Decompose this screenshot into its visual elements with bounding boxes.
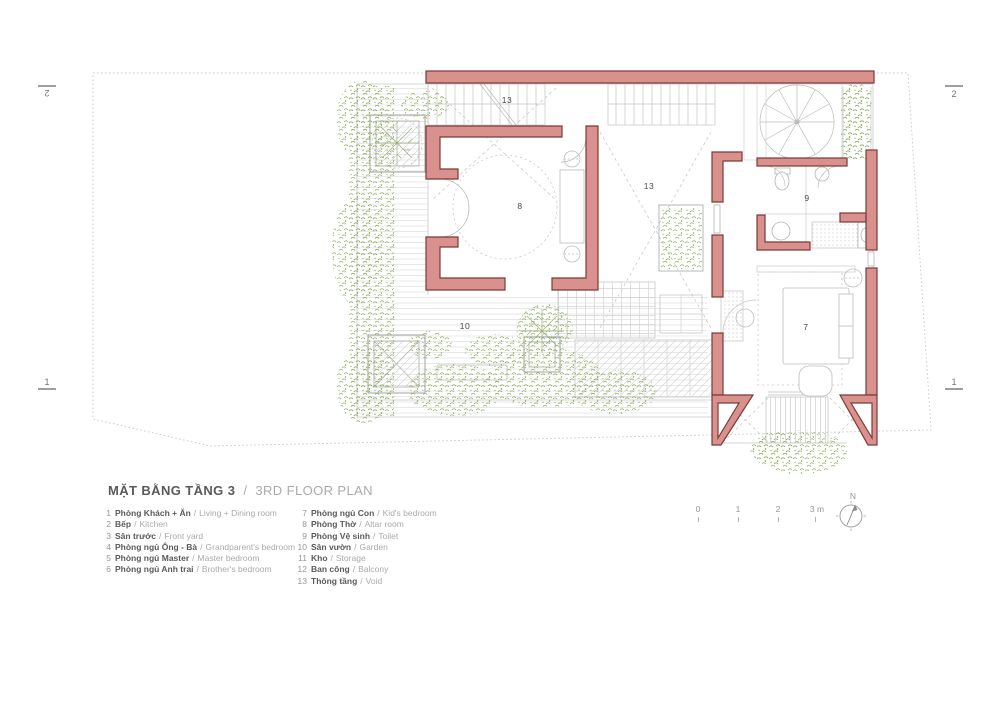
scale-tick-label: 0 <box>696 504 701 514</box>
floor-plan-drawing: 2 1 2 1 <box>0 0 1000 707</box>
legend-separator: / <box>159 531 161 542</box>
legend-separator: / <box>134 519 136 530</box>
legend-name-en: Master bedroom <box>198 553 260 564</box>
kids-bedroom-furniture <box>721 266 862 396</box>
north-arrow: N <box>833 490 869 532</box>
toilet-fixtures <box>765 166 874 250</box>
legend-name-en: Kid's bedroom <box>383 508 437 519</box>
legend-name-en: Brother's bedroom <box>202 564 272 575</box>
legend-name-en: Front yard <box>164 531 203 542</box>
room-label-garden: 10 <box>460 321 470 331</box>
legend-item: 12 Ban công / Balcony <box>296 564 437 575</box>
legend-number: 6 <box>100 564 111 575</box>
legend-name-en: Kitchen <box>139 519 167 530</box>
legend-name-vi: Sân trước <box>115 531 156 542</box>
legend-separator: / <box>377 508 379 519</box>
altar-room-furniture <box>440 137 586 262</box>
sheet-title: MẶT BẰNG TẦNG 3 / 3RD FLOOR PLAN <box>108 483 373 498</box>
legend-column-left: 1 Phòng Khách + Ăn / Living + Dining roo… <box>100 508 295 576</box>
legend-name-en: Storage <box>336 553 366 564</box>
legend-item: 4 Phòng ngủ Ông - Bà / Grandparent's bed… <box>100 542 295 553</box>
sheet-title-english: 3RD FLOOR PLAN <box>255 483 373 498</box>
legend-name-vi: Bếp <box>115 519 131 530</box>
room-label-toilet: 9 <box>804 193 809 203</box>
legend-number: 12 <box>296 564 307 575</box>
legend-separator: / <box>359 519 361 530</box>
section-marker-left-2: 2 <box>44 88 49 98</box>
legend-name-vi: Ban công <box>311 564 350 575</box>
spiral-stair <box>744 84 842 160</box>
legend-name-vi: Phòng ngủ Master <box>115 553 189 564</box>
legend-separator: / <box>360 576 362 587</box>
section-marker-right-2: 2 <box>951 89 956 99</box>
legend-separator: / <box>331 553 333 564</box>
legend-separator: / <box>373 531 375 542</box>
scale-tick-label: 2 <box>776 504 781 514</box>
room-label-altar-room: 8 <box>517 201 522 211</box>
legend-separator: / <box>194 508 196 519</box>
legend-name-vi: Phòng ngủ Anh trai <box>115 564 194 575</box>
legend-name-en: Altar room <box>365 519 404 530</box>
sheet-title-separator: / <box>243 483 247 498</box>
legend-separator: / <box>354 542 356 553</box>
legend-name-vi: Phòng ngủ Con <box>311 508 374 519</box>
legend-number: 3 <box>100 531 111 542</box>
legend-number: 7 <box>296 508 307 519</box>
balcony-planter <box>766 392 828 443</box>
legend-item: 1 Phòng Khách + Ăn / Living + Dining roo… <box>100 508 295 519</box>
legend-separator: / <box>192 553 194 564</box>
legend-item: 7 Phòng ngủ Con / Kid's bedroom <box>296 508 437 519</box>
room-label-void-stair: 13 <box>502 95 512 105</box>
legend-item: 2 Bếp / Kitchen <box>100 519 295 530</box>
stair-secondary <box>608 84 715 125</box>
legend-name-en: Garden <box>359 542 387 553</box>
section-marker-left-1: 1 <box>44 377 49 387</box>
scale-tick-label: 1 <box>736 504 741 514</box>
scale-tick-mark <box>815 517 816 522</box>
legend-name-en: Toilet <box>378 531 398 542</box>
room-label-void-center: 13 <box>644 181 654 191</box>
legend-column-right: 7 Phòng ngủ Con / Kid's bedroom 8 Phòng … <box>296 508 437 587</box>
legend-item: 8 Phòng Thờ / Altar room <box>296 519 437 530</box>
legend-number: 1 <box>100 508 111 519</box>
legend-name-en: Void <box>366 576 383 587</box>
legend-item: 13 Thông tầng / Void <box>296 576 437 587</box>
legend-name-vi: Kho <box>311 553 328 564</box>
legend-item: 6 Phòng ngủ Anh trai / Brother's bedroom <box>100 564 295 575</box>
legend-item: 9 Phòng Vệ sinh / Toilet <box>296 531 437 542</box>
floor-plan-sheet: 2 1 2 1 <box>0 0 1000 707</box>
legend-number: 4 <box>100 542 111 553</box>
legend-number: 2 <box>100 519 111 530</box>
legend-name-en: Living + Dining room <box>199 508 277 519</box>
legend-item: 10 Sân vườn / Garden <box>296 542 437 553</box>
legend-number: 11 <box>296 553 307 564</box>
scale-bar: 0 1 2 3 m <box>695 504 835 528</box>
section-marker-right-1: 1 <box>951 377 956 387</box>
legend-name-en: Balcony <box>358 564 388 575</box>
legend-item: 11 Kho / Storage <box>296 553 437 564</box>
north-label: N <box>850 491 856 501</box>
sheet-title-vietnamese: MẶT BẰNG TẦNG 3 <box>108 483 235 498</box>
scale-tick-mark <box>778 517 779 522</box>
legend-name-vi: Phòng Thờ <box>311 519 356 530</box>
legend-number: 13 <box>296 576 307 587</box>
legend-name-vi: Phòng ngủ Ông - Bà <box>115 542 197 553</box>
scale-tick-mark <box>698 517 699 522</box>
legend-name-vi: Phòng Khách + Ăn <box>115 508 191 519</box>
legend-item: 5 Phòng ngủ Master / Master bedroom <box>100 553 295 564</box>
scale-tick-mark <box>738 517 739 522</box>
legend-item: 3 Sân trước / Front yard <box>100 531 295 542</box>
legend-name-vi: Phòng Vệ sinh <box>311 531 370 542</box>
legend-name-vi: Thông tầng <box>311 576 357 587</box>
legend-number: 9 <box>296 531 307 542</box>
legend-number: 5 <box>100 553 111 564</box>
legend-number: 10 <box>296 542 307 553</box>
legend-name-en: Grandparent's bedroom <box>206 542 296 553</box>
legend-number: 8 <box>296 519 307 530</box>
legend-name-vi: Sân vườn <box>311 542 351 553</box>
legend-separator: / <box>197 564 199 575</box>
legend-separator: / <box>353 564 355 575</box>
legend-separator: / <box>200 542 202 553</box>
scale-tick-label: 3 m <box>810 504 824 514</box>
room-label-kids-bedroom: 7 <box>803 322 808 332</box>
